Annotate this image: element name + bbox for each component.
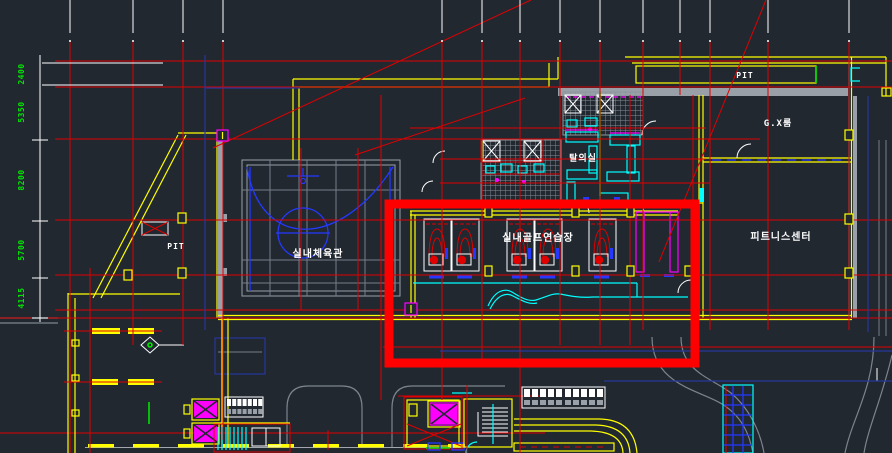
- trench-grid: [723, 385, 753, 453]
- grid-ticks: [69, 0, 850, 42]
- label-fitness-center: 피트니스센터: [750, 230, 811, 243]
- dim-label-8200: 8200: [17, 169, 26, 190]
- grating-block: [522, 387, 605, 408]
- elevator-core-center: [398, 393, 545, 450]
- label-pit-top: PIT: [736, 71, 753, 80]
- label-golf-range: 실내골프연습장: [502, 231, 573, 244]
- red-gridlines: [0, 0, 892, 453]
- basketball-court: [247, 167, 393, 291]
- label-pit-left: PIT: [167, 242, 184, 251]
- dim-label-5350: 5350: [17, 101, 26, 122]
- dim-label-4115: 4115: [17, 287, 26, 308]
- cad-viewport[interactable]: 2400 5350 8200 5700 4115 실내체육관 실내골프연습장 피…: [0, 0, 892, 453]
- stairs-center: [464, 399, 512, 453]
- tile-grid-block: [225, 397, 263, 417]
- dim-label-2400: 2400: [17, 63, 26, 84]
- dim-label-5700: 5700: [17, 239, 26, 260]
- west-wall-ramp: [93, 133, 227, 318]
- road-markings: [0, 419, 637, 453]
- gx-fitness-walls: [699, 57, 886, 336]
- toilet-area: [422, 139, 561, 202]
- label-gx-room: G.X룸: [764, 117, 793, 129]
- gymnasium: [242, 160, 400, 296]
- label-gym: 실내체육관: [293, 247, 344, 260]
- label-locker-room: 탈의실: [569, 152, 597, 164]
- golf-net-structure: [636, 212, 678, 277]
- elevator-core-left: [149, 399, 219, 444]
- shower-area: [563, 92, 643, 135]
